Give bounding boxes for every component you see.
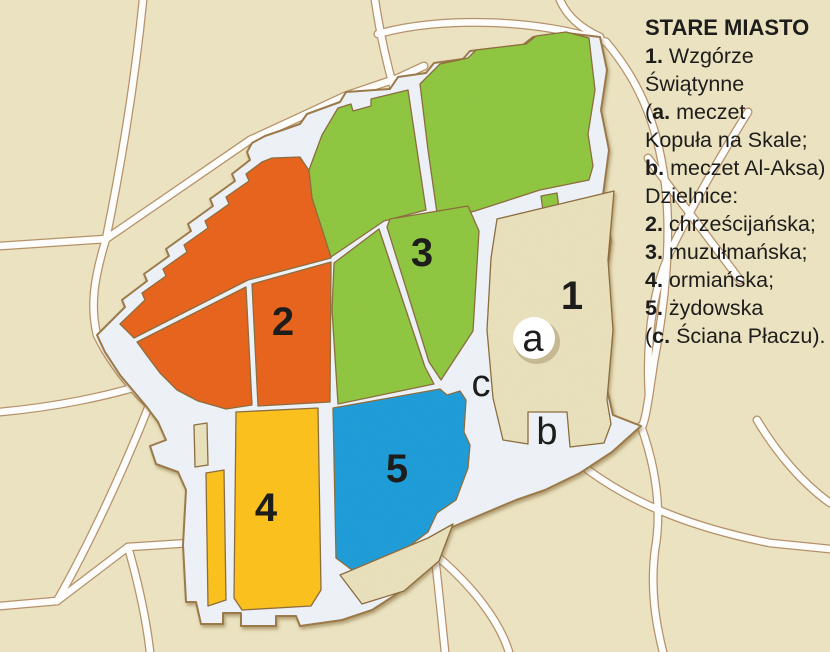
- legend-line: (a. meczet: [645, 98, 830, 126]
- poi-label-c-western-wall: c: [472, 363, 491, 405]
- legend-lines: 1. WzgórzeŚwiątynne(a. meczetKopuła na S…: [645, 42, 830, 350]
- old-city-map-figure: 1 2 3 4 5 a b c STARE MIASTO 1. WzgórzeŚ…: [0, 0, 830, 652]
- legend-segment: 2.: [645, 212, 663, 236]
- legend-line: 1. Wzgórze: [645, 42, 830, 70]
- legend-line: Świątynne: [645, 70, 830, 98]
- poi-label-a-dome-of-the-rock: a: [522, 318, 544, 360]
- legend-line: Kopuła na Skale;: [645, 126, 830, 154]
- district-label-4: 4: [255, 486, 278, 530]
- legend-title: STARE MIASTO: [645, 14, 830, 42]
- poi-label-b-al-aksa: b: [536, 411, 557, 453]
- legend-segment: 1.: [645, 44, 663, 68]
- district-label-2: 2: [272, 300, 294, 344]
- legend-segment: b.: [645, 156, 664, 180]
- legend-segment: 4.: [645, 268, 663, 292]
- legend-line: (c. Ściana Płaczu).: [645, 322, 830, 350]
- legend-line: 4. ormiańska;: [645, 266, 830, 294]
- legend-segment: 3.: [645, 240, 663, 264]
- legend-segment: Kopuła na Skale;: [645, 128, 808, 152]
- legend-segment: Świątynne: [645, 72, 744, 96]
- legend-line: Dzielnice:: [645, 182, 830, 210]
- legend-segment: 5.: [645, 296, 663, 320]
- legend-segment: meczet Al-Aksa): [664, 156, 825, 180]
- legend-line: 2. chrześcijańska;: [645, 210, 830, 238]
- legend-segment: Ściana Płaczu).: [670, 324, 825, 348]
- legend: STARE MIASTO 1. WzgórzeŚwiątynne(a. mecz…: [645, 14, 830, 350]
- legend-segment: Wzgórze: [663, 44, 754, 68]
- legend-line: 5. żydowska: [645, 294, 830, 322]
- legend-segment: meczet: [670, 100, 745, 124]
- district-label-3: 3: [411, 231, 433, 275]
- district-label-1: 1: [561, 274, 583, 318]
- legend-segment: a.: [652, 100, 670, 124]
- legend-line: b. meczet Al-Aksa): [645, 154, 830, 182]
- legend-segment: chrześcijańska;: [663, 212, 816, 236]
- legend-segment: żydowska: [663, 296, 763, 320]
- legend-line: 3. muzułmańska;: [645, 238, 830, 266]
- legend-segment: Dzielnice:: [645, 184, 738, 208]
- legend-segment: c.: [652, 324, 670, 348]
- district-label-5: 5: [386, 447, 408, 491]
- legend-segment: ormiańska;: [663, 268, 774, 292]
- legend-segment: muzułmańska;: [663, 240, 808, 264]
